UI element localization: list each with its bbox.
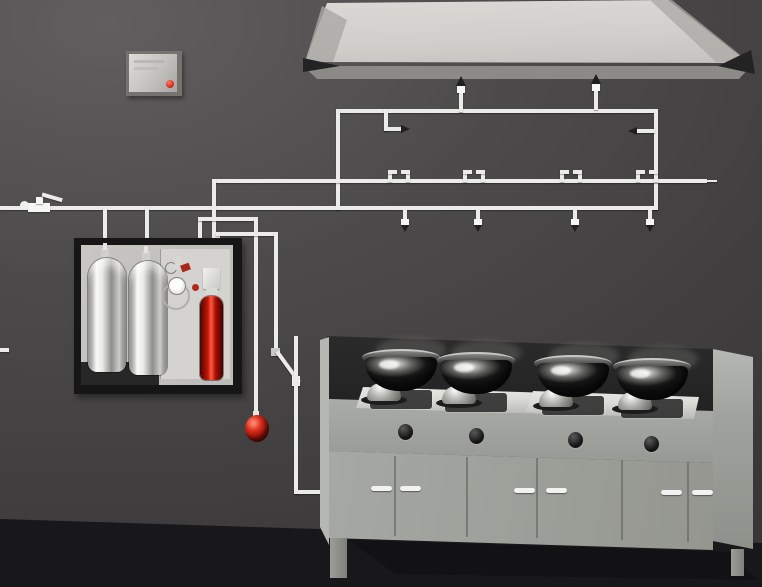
- range-leg-right: [731, 549, 744, 576]
- door-handle: [400, 486, 421, 491]
- wok-highlight: [379, 360, 399, 369]
- door-seam: [621, 460, 623, 540]
- door-handle: [371, 486, 392, 491]
- door-handle: [514, 488, 535, 493]
- wok-bowl: [537, 363, 609, 397]
- wok-bowl: [365, 357, 437, 391]
- door-handle: [692, 490, 713, 495]
- wok-highlight: [454, 363, 474, 372]
- wok: [534, 355, 612, 401]
- wok-bowl: [440, 360, 512, 394]
- burner-knob: [398, 424, 413, 440]
- range-leg-left: [330, 538, 347, 578]
- burner-knob: [568, 432, 583, 448]
- kitchen-suppression-scene: [0, 0, 762, 587]
- door-handle: [661, 490, 682, 495]
- wok: [362, 349, 440, 395]
- wok-highlight: [551, 366, 571, 375]
- range-right-panel: [713, 349, 753, 549]
- door-seam: [536, 458, 538, 538]
- burner-knob: [644, 436, 659, 452]
- wok: [437, 352, 515, 398]
- door-handle: [546, 488, 567, 493]
- wok-bowl: [616, 366, 688, 400]
- door-seam: [466, 457, 468, 537]
- door-seam: [394, 456, 396, 536]
- burner-knob: [469, 428, 484, 444]
- door-seam: [687, 462, 689, 542]
- wok-highlight: [630, 369, 650, 378]
- wok: [613, 358, 691, 404]
- cooking-range: [0, 0, 762, 587]
- range-base-cabinet: [329, 451, 713, 550]
- range-left-panel: [320, 337, 329, 545]
